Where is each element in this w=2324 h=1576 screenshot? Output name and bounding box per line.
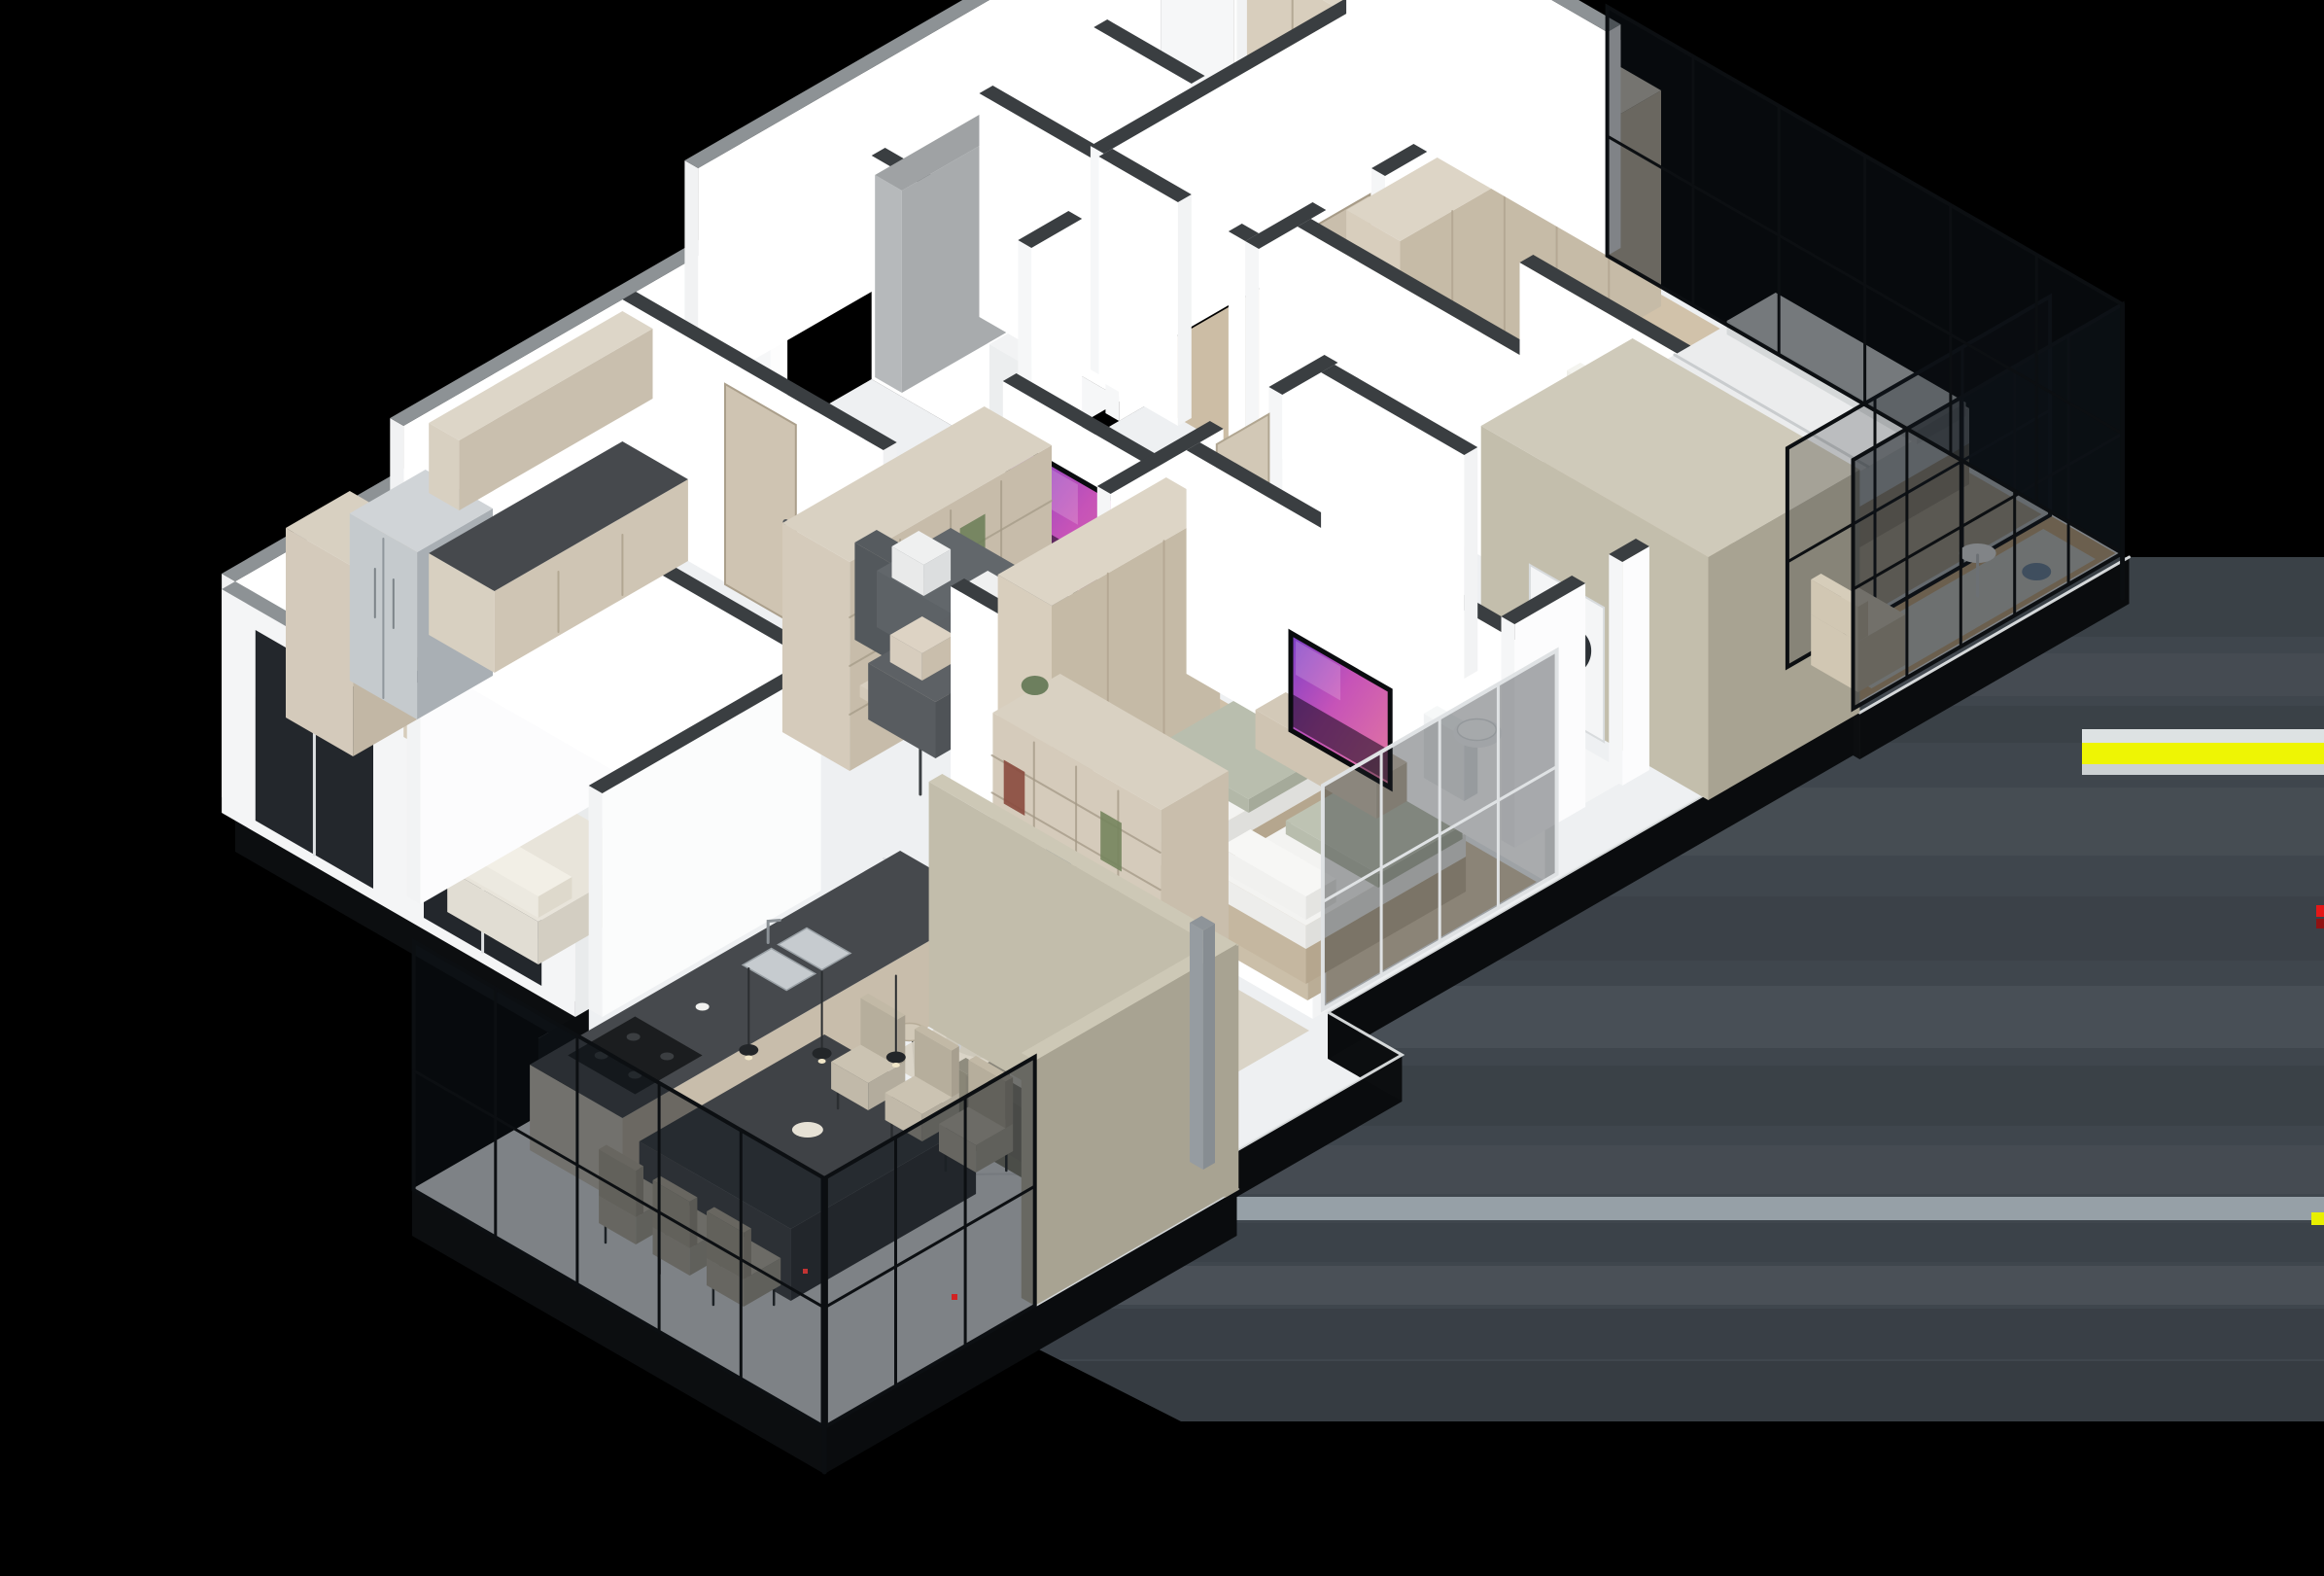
video-artifact-red-dot-2 xyxy=(803,1269,808,1274)
video-artifact-light-band xyxy=(2082,764,2324,775)
video-artifact-red-b xyxy=(2316,919,2324,928)
video-artifact-red-dot-1 xyxy=(952,1294,957,1300)
bowl-dining xyxy=(792,1122,823,1138)
isometric-floor-plan-render xyxy=(0,0,2324,1576)
jar-island xyxy=(696,1003,710,1011)
screenshot-root: 3D isometric apartment floor plan render xyxy=(0,0,2324,1576)
wall-bedroom-top-west-a xyxy=(1099,149,1192,426)
video-artifact-white-band xyxy=(2082,729,2324,743)
video-artifact-yellow-stripe xyxy=(2082,743,2324,764)
slab-edge-balcony-step xyxy=(1854,709,1860,759)
hob-burner xyxy=(660,1053,674,1061)
column-entry-gray xyxy=(1190,916,1215,1170)
bookshelf-plant xyxy=(1022,676,1049,695)
hob-burner xyxy=(627,1033,641,1041)
video-artifact-stripe xyxy=(951,1309,2324,1359)
video-artifact-yellow-small xyxy=(2311,1212,2324,1225)
wall-bath1-front-b xyxy=(1609,539,1649,786)
video-artifact-red-a xyxy=(2316,905,2324,917)
